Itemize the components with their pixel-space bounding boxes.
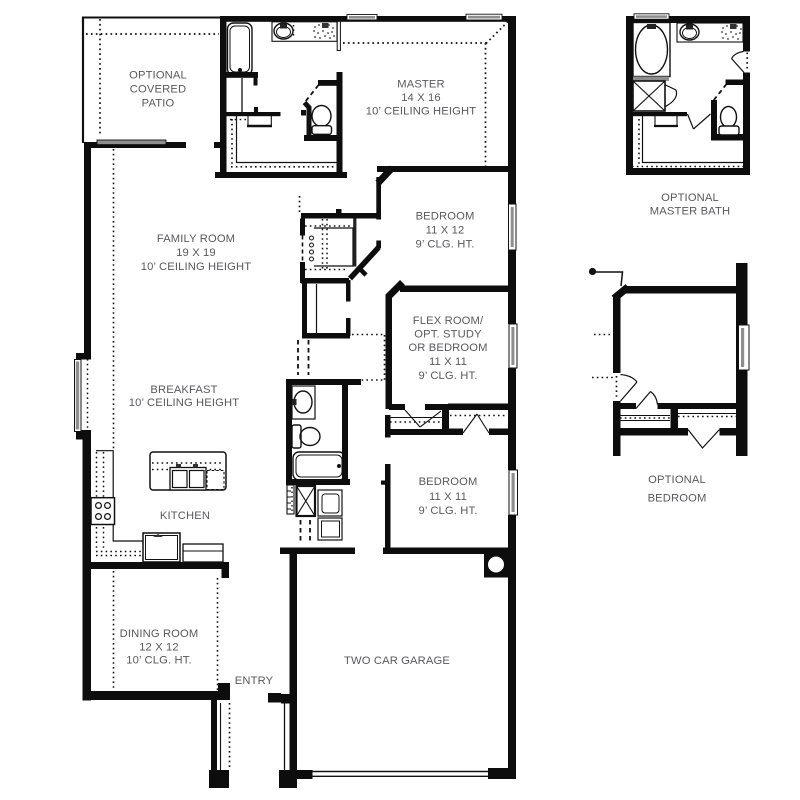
svg-text:OPTIONAL: OPTIONAL <box>648 474 706 486</box>
svg-text:9’ CLG. HT.: 9’ CLG. HT. <box>418 505 477 517</box>
svg-text:COVERED: COVERED <box>130 84 186 96</box>
svg-text:11 X 12: 11 X 12 <box>426 225 465 237</box>
svg-text:BEDROOM: BEDROOM <box>648 493 707 505</box>
svg-text:10’ CLG. HT.: 10’ CLG. HT. <box>126 655 191 667</box>
svg-text:DINING ROOM: DINING ROOM <box>120 628 199 640</box>
svg-text:OPT. STUDY: OPT. STUDY <box>414 329 482 341</box>
svg-text:FAMILY ROOM: FAMILY ROOM <box>157 233 235 245</box>
svg-text:OPTIONAL: OPTIONAL <box>129 70 187 82</box>
svg-text:MASTER BATH: MASTER BATH <box>650 206 730 218</box>
svg-text:ENTRY: ENTRY <box>235 675 274 687</box>
svg-text:OR BEDROOM: OR BEDROOM <box>408 342 487 354</box>
svg-text:MASTER: MASTER <box>397 79 445 91</box>
svg-text:TWO CAR GARAGE: TWO CAR GARAGE <box>344 655 450 667</box>
svg-text:9’ CLG. HT.: 9’ CLG. HT. <box>415 239 474 251</box>
svg-text:11 X 11: 11 X 11 <box>429 356 467 368</box>
svg-text:14 X 16: 14 X 16 <box>401 92 441 104</box>
svg-text:10’ CEILING HEIGHT: 10’ CEILING HEIGHT <box>129 397 239 409</box>
svg-text:FLEX ROOM/: FLEX ROOM/ <box>413 315 484 327</box>
svg-text:PATIO: PATIO <box>142 98 175 110</box>
svg-text:19 X 19: 19 X 19 <box>176 247 216 259</box>
svg-text:11 X 11: 11 X 11 <box>429 491 467 503</box>
svg-text:KITCHEN: KITCHEN <box>160 510 210 522</box>
svg-text:BEDROOM: BEDROOM <box>416 211 475 223</box>
svg-text:10’ CEILING HEIGHT: 10’ CEILING HEIGHT <box>366 106 476 118</box>
svg-text:BEDROOM: BEDROOM <box>419 476 478 488</box>
svg-text:10’ CEILING HEIGHT: 10’ CEILING HEIGHT <box>141 261 251 273</box>
svg-text:BREAKFAST: BREAKFAST <box>150 384 217 396</box>
svg-text:12 X 12: 12 X 12 <box>139 642 179 654</box>
svg-text:OPTIONAL: OPTIONAL <box>661 192 719 204</box>
svg-text:9’ CLG. HT.: 9’ CLG. HT. <box>418 370 477 382</box>
